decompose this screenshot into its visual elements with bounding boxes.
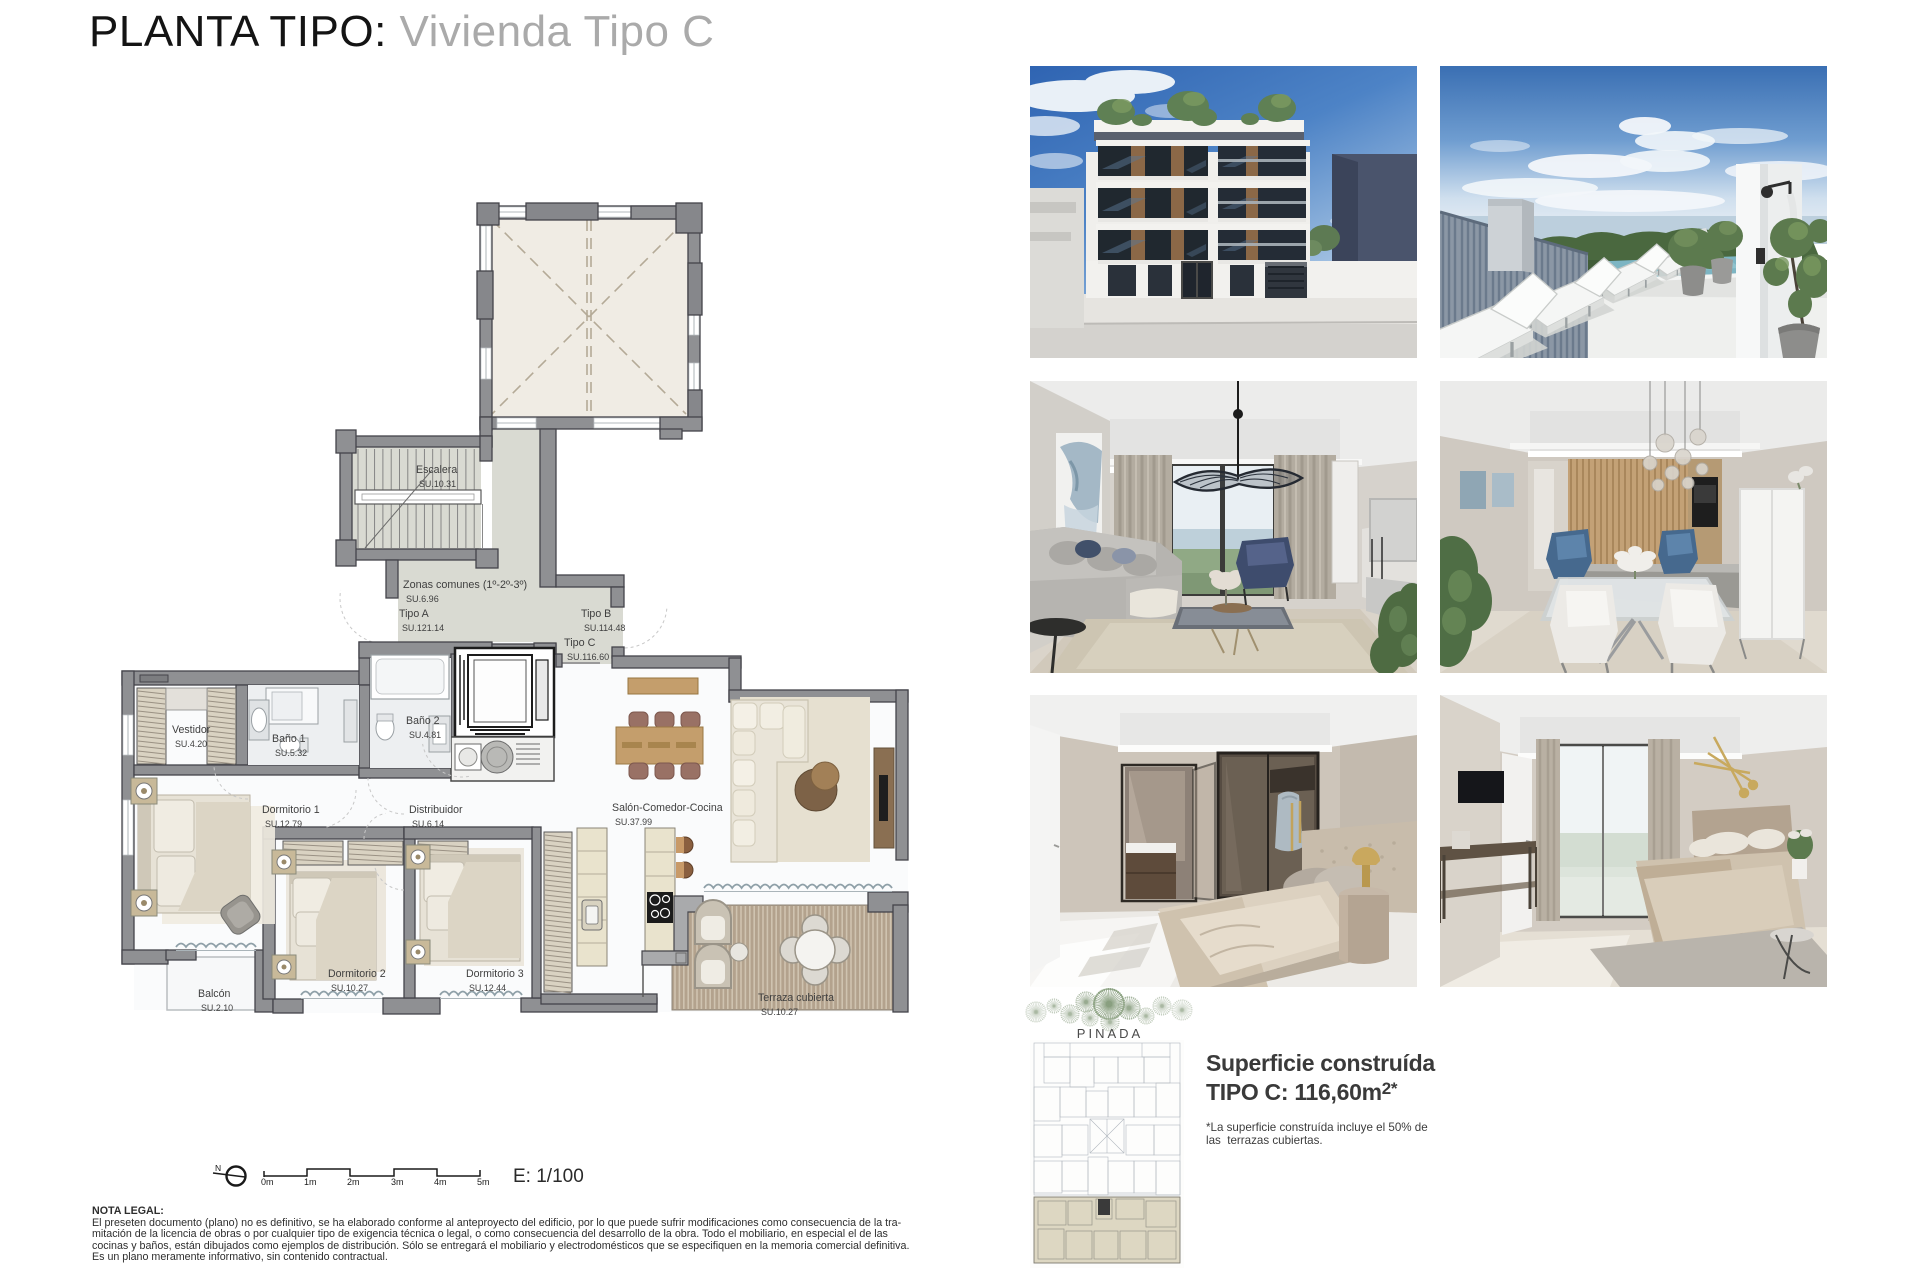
svg-text:SU.5.32: SU.5.32 <box>275 748 307 758</box>
svg-text:SU.10.31: SU.10.31 <box>419 479 456 489</box>
svg-text:5m: 5m <box>477 1177 490 1187</box>
svg-text:SU.4.81: SU.4.81 <box>409 730 441 740</box>
svg-text:SU.121.14: SU.121.14 <box>402 623 444 633</box>
svg-text:Escalera: Escalera <box>416 464 457 476</box>
svg-text:3m: 3m <box>391 1177 404 1187</box>
svg-text:SU.10.27: SU.10.27 <box>331 983 368 993</box>
svg-text:SU.12.79: SU.12.79 <box>265 819 302 829</box>
svg-text:SU.114.48: SU.114.48 <box>584 623 625 633</box>
svg-text:E: 1/100: E: 1/100 <box>513 1166 584 1187</box>
svg-text:SU.116.60: SU.116.60 <box>567 652 609 662</box>
svg-text:Dormitorio 1: Dormitorio 1 <box>262 804 320 816</box>
svg-text:Zonas comunes (1º-2º-3º): Zonas comunes (1º-2º-3º) <box>403 579 527 591</box>
svg-text:4m: 4m <box>434 1177 447 1187</box>
svg-text:2m: 2m <box>347 1177 360 1187</box>
svg-text:Salón-Comedor-Cocina: Salón-Comedor-Cocina <box>612 802 723 814</box>
svg-text:Distribuidor: Distribuidor <box>409 804 463 816</box>
svg-text:SU.10.27: SU.10.27 <box>761 1007 798 1017</box>
svg-text:Baño 1: Baño 1 <box>272 733 306 745</box>
svg-text:0m: 0m <box>261 1177 274 1187</box>
svg-text:Vestidor: Vestidor <box>172 724 211 736</box>
svg-text:SU.6.96: SU.6.96 <box>406 594 439 604</box>
svg-text:SU.4.20: SU.4.20 <box>175 739 207 749</box>
svg-text:Tipo C: Tipo C <box>564 637 596 649</box>
svg-text:SU.2.10: SU.2.10 <box>201 1003 233 1013</box>
svg-text:SU.12.44: SU.12.44 <box>469 983 506 993</box>
svg-text:Tipo A: Tipo A <box>399 608 430 620</box>
svg-text:Balcón: Balcón <box>198 988 230 1000</box>
svg-text:N: N <box>215 1163 221 1173</box>
svg-text:Dormitorio 2: Dormitorio 2 <box>328 968 386 980</box>
svg-text:Dormitorio 3: Dormitorio 3 <box>466 968 524 980</box>
svg-text:Baño 2: Baño 2 <box>406 715 440 727</box>
svg-text:Terraza cubierta: Terraza cubierta <box>758 992 834 1004</box>
svg-text:SU.6.14: SU.6.14 <box>412 819 444 829</box>
svg-text:1m: 1m <box>304 1177 317 1187</box>
svg-text:SU.37.99: SU.37.99 <box>615 817 652 827</box>
svg-text:Tipo B: Tipo B <box>581 608 611 620</box>
